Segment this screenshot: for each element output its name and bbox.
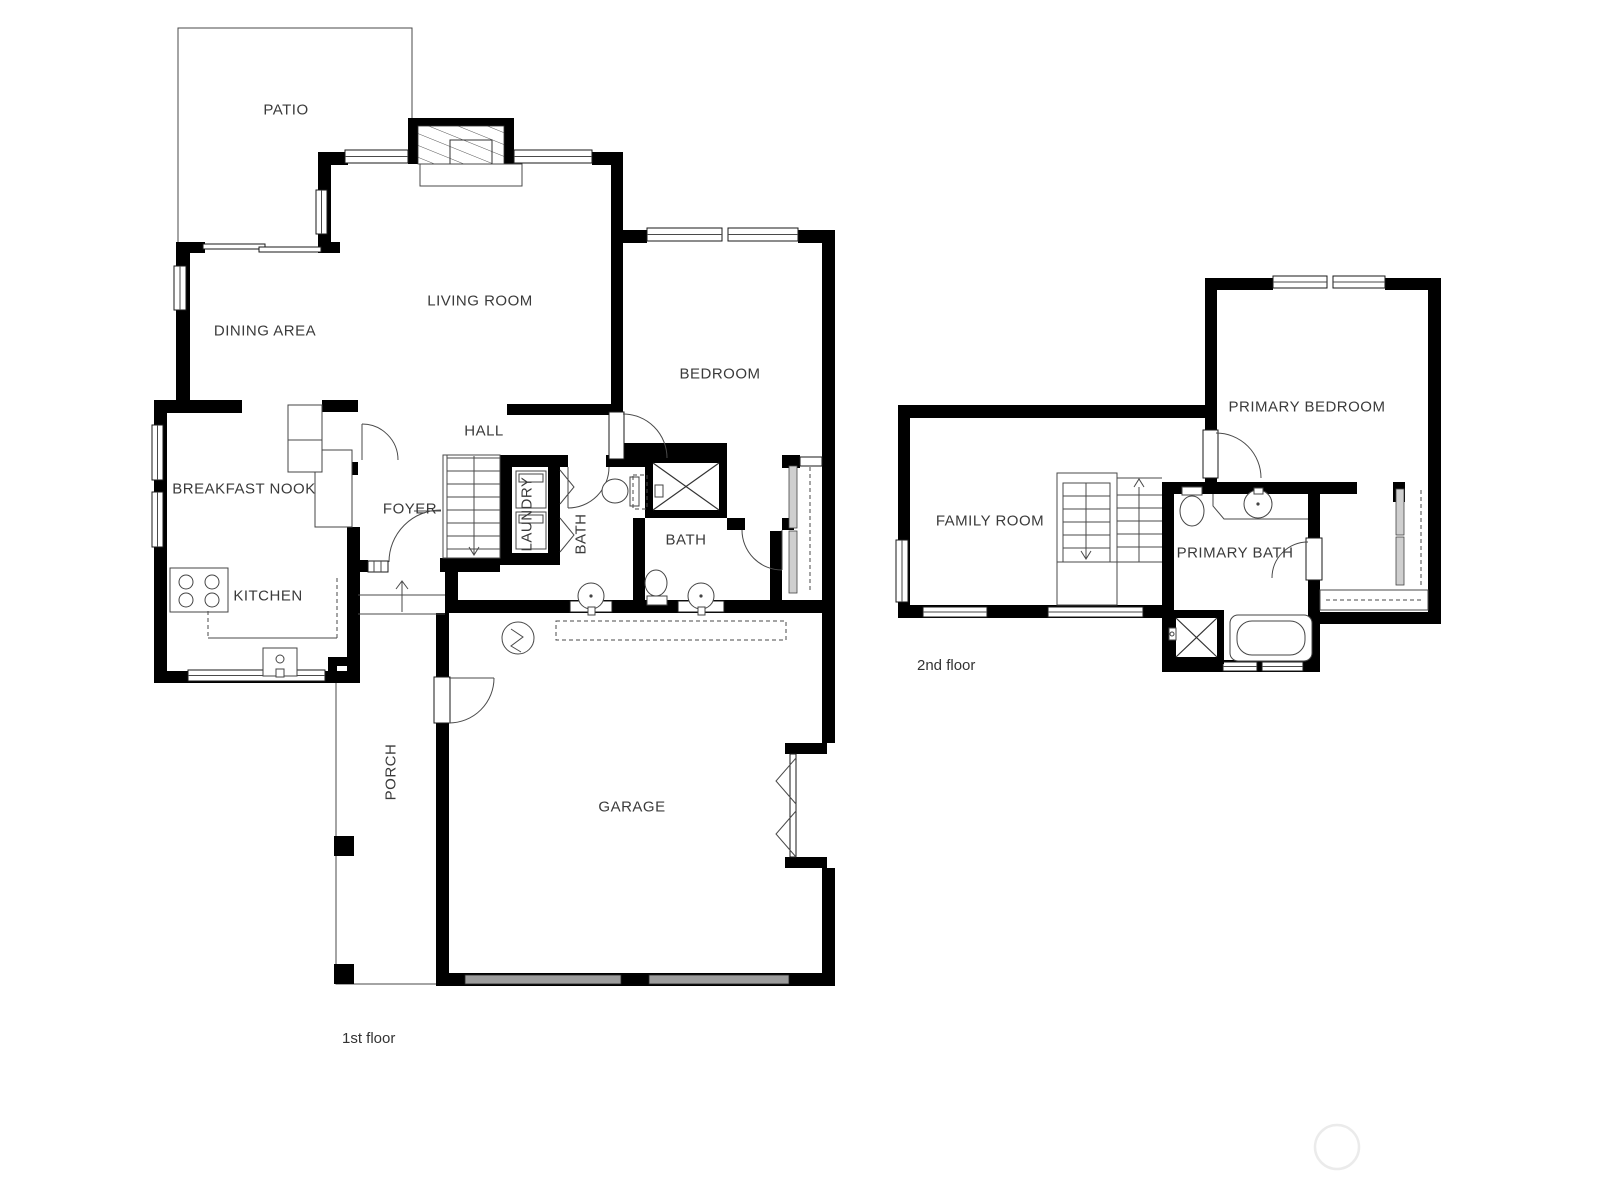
room-label-bath-2: BATH: [666, 531, 707, 548]
window: [345, 150, 408, 163]
window: [174, 266, 186, 310]
window: [647, 228, 722, 241]
porch-post: [334, 964, 354, 984]
floorplan-canvas: PATIO LIVING ROOM DINING AREA BREAKFAST …: [0, 0, 1600, 1200]
pantry-cabinets: [288, 405, 322, 472]
room-label-porch: PORCH: [382, 744, 399, 801]
toilet-icon-bath2: [645, 570, 667, 605]
shower-primary: [1168, 610, 1224, 664]
window: [188, 670, 325, 681]
room-label-breakfast-nook: BREAKFAST NOOK: [172, 480, 315, 497]
window: [1048, 607, 1143, 617]
room-label-living-room: LIVING ROOM: [427, 292, 533, 309]
window: [1333, 276, 1385, 288]
room-label-family-room: FAMILY ROOM: [936, 512, 1044, 529]
room-label-foyer: FOYER: [383, 500, 437, 517]
window: [923, 607, 987, 617]
window: [152, 425, 163, 480]
floor-caption-first: 1st floor: [342, 1030, 395, 1047]
window: [1223, 662, 1257, 671]
window: [1262, 662, 1303, 671]
window: [152, 492, 163, 547]
fireplace-hearth: [420, 164, 522, 186]
room-label-hall: HALL: [464, 422, 504, 439]
floor-caption-second: 2nd floor: [917, 657, 975, 674]
stove-icon: [170, 568, 228, 612]
room-label-primary-bath: PRIMARY BATH: [1177, 544, 1294, 561]
window: [728, 228, 798, 241]
kitchen-sink-icon: [263, 648, 297, 677]
room-label-dining-area: DINING AREA: [214, 322, 316, 339]
room-label-garage: GARAGE: [598, 798, 665, 815]
floorplan-svg: PATIO LIVING ROOM DINING AREA BREAKFAST …: [0, 0, 1600, 1200]
bathtub-icon: [1230, 615, 1312, 661]
porch-post: [334, 836, 354, 856]
room-label-patio: PATIO: [263, 101, 308, 118]
room-label-bath-1: BATH: [572, 514, 589, 555]
window: [1273, 276, 1327, 288]
toilet-icon-primary: [1180, 487, 1204, 526]
room-label-kitchen: KITCHEN: [233, 587, 302, 604]
window: [316, 190, 327, 234]
window: [514, 150, 592, 163]
window: [896, 540, 908, 602]
room-label-bedroom: BEDROOM: [679, 365, 760, 382]
room-label-laundry: LAUNDRY: [518, 477, 535, 552]
room-label-primary-bedroom: PRIMARY BEDROOM: [1229, 398, 1386, 415]
